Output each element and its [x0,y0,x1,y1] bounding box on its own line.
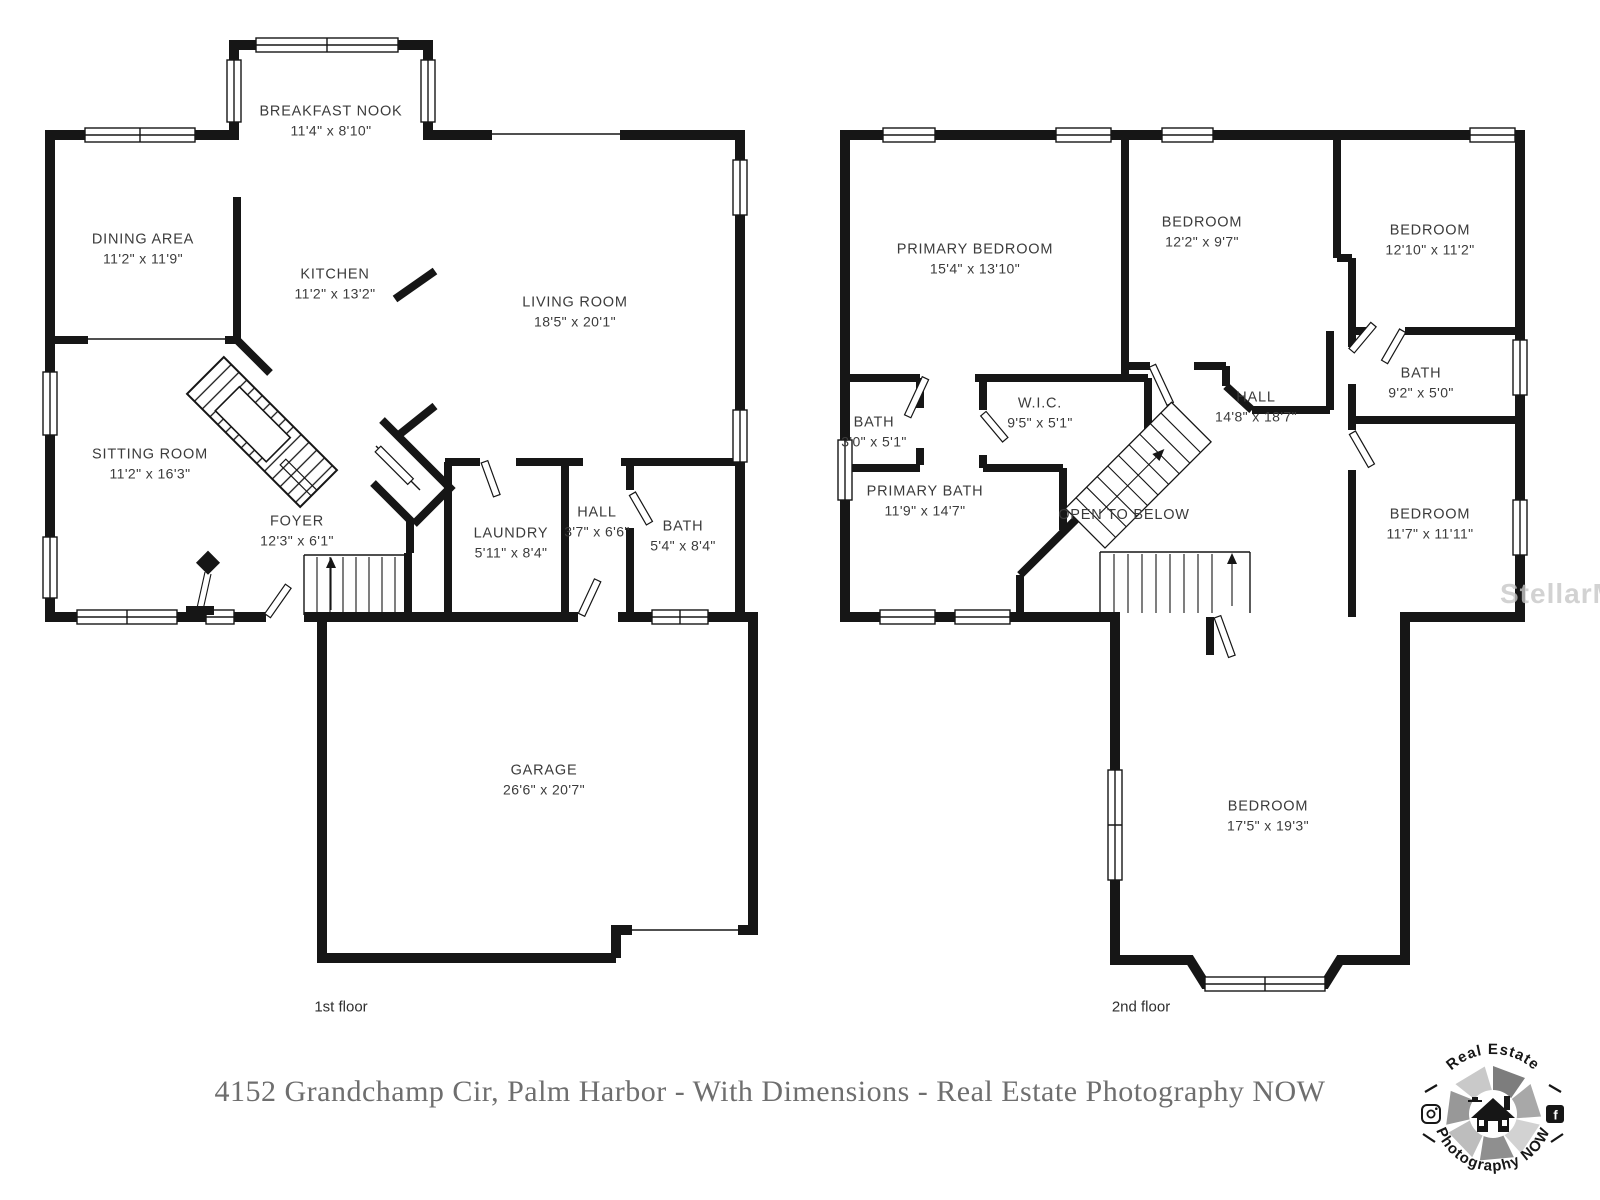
window [652,610,708,624]
room-label-kitchen: KITCHEN 11'2" x 13'2" [295,267,376,302]
fireplace-icon [187,357,337,507]
floorplan-drawing [0,0,1600,1200]
room-label-bath-f1: BATH 5'4" x 8'4" [650,519,716,554]
floorplan-page: BREAKFAST NOOK 11'4" x 8'10" DINING AREA… [0,0,1600,1200]
window [880,610,935,624]
window [883,128,935,142]
window [1205,977,1325,991]
window [77,610,177,624]
window [1513,340,1527,395]
floor1-label: 1st floor [314,999,367,1016]
window [421,60,435,122]
room-label-bedroom-b: BEDROOM 12'10" x 11'2" [1385,223,1474,258]
room-label-bedroom-c: BEDROOM 11'7" x 11'11" [1386,507,1473,542]
window [1108,770,1122,880]
window [85,128,195,142]
room-label-sitting-room: SITTING ROOM 11'2" x 16'3" [92,447,208,482]
door-leaf [375,446,413,484]
room-label-garage: GARAGE 26'6" x 20'7" [503,763,585,798]
room-label-dining-area: DINING AREA 11'2" x 11'9" [92,232,194,267]
room-label-foyer: FOYER 12'3" x 6'1" [260,514,334,549]
floor2-label: 2nd floor [1112,999,1170,1016]
room-label-bath-upper: BATH 9'2" x 5'0" [1388,366,1454,401]
floor2-stairs-lower [1100,552,1250,613]
stairs-up-arrow [326,557,336,568]
window [1513,500,1527,555]
room-label-primary-bath: PRIMARY BATH 11'9" x 14'7" [867,484,984,519]
window [733,410,747,462]
floor1-stairs [304,555,408,615]
stellar-mls-watermark: StellarMLS [1500,578,1600,610]
door-leaf [578,579,600,616]
room-label-living-room: LIVING ROOM 18'5" x 20'1" [522,295,627,330]
room-label-hall-f1: HALL 3'7" x 6'6" [564,505,630,540]
room-label-hall-f2: HALL 14'8" x 18'7" [1215,390,1297,425]
window [733,160,747,215]
window [43,537,57,598]
room-label-wic: W.I.C. 9'5" x 5'1" [1007,396,1073,431]
window [227,60,241,122]
window [1162,128,1213,142]
room-label-open-to-below: OPEN TO BELOW [1058,507,1190,523]
room-label-laundry: LAUNDRY 5'11" x 8'4" [474,526,549,561]
photographer-logo: Real Estate Photography NOW f [1408,1026,1578,1196]
door-opening [583,457,621,467]
window [1056,128,1111,142]
room-label-breakfast-nook: BREAKFAST NOOK 11'4" x 8'10" [259,104,402,139]
window [1470,128,1515,142]
floor1-plan [43,38,753,958]
facebook-icon: f [1546,1105,1564,1123]
door-opening [1347,347,1357,384]
page-title: 4152 Grandchamp Cir, Palm Harbor - With … [214,1075,1325,1109]
floor-lamp-icon [186,551,220,615]
window [43,372,57,435]
window [256,38,398,52]
room-label-bath-small: BATH 3'0" x 5'1" [841,415,907,450]
room-label-bedroom-a: BEDROOM 12'2" x 9'7" [1162,215,1243,250]
facebook-glyph: f [1553,1108,1558,1123]
floor2-stairs-upper [1065,402,1211,548]
stairs-up-arrow [1227,553,1237,564]
door-opening [492,129,620,141]
instagram-icon [1422,1105,1440,1123]
window [955,610,1010,624]
room-label-primary-bedroom: PRIMARY BEDROOM 15'4" x 13'10" [897,242,1054,277]
door-opening [925,373,971,383]
door-opening [915,408,925,448]
room-label-bedroom-d: BEDROOM 17'5" x 19'3" [1227,799,1309,834]
